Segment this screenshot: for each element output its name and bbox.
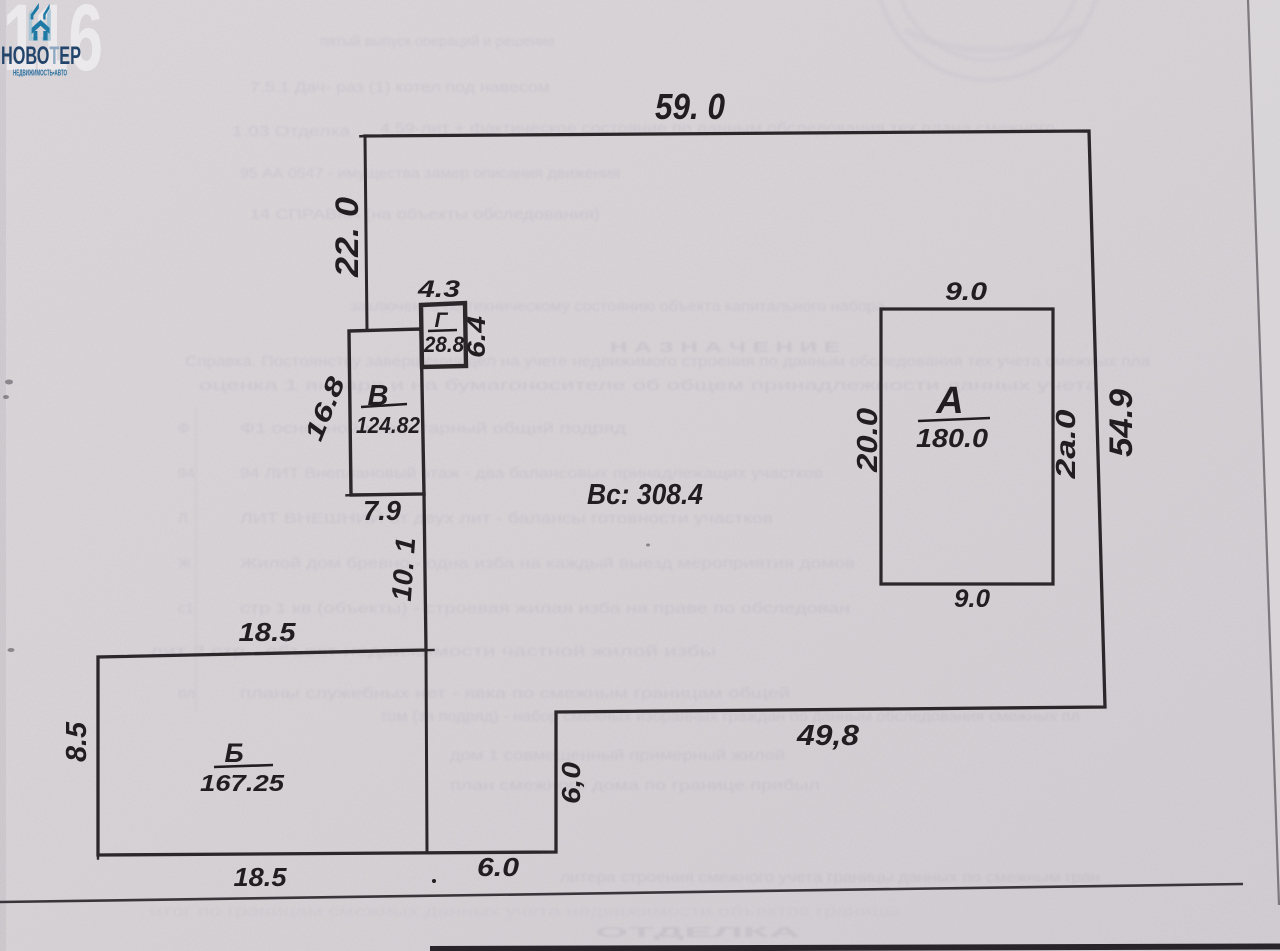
svg-text:6.4: 6.4 [463,316,491,358]
svg-text:НЕДВИЖИМОСТЬ▪АВТО: НЕДВИЖИМОСТЬ▪АВТО [13,69,67,78]
svg-text:7.5.1 Дач- раз (1) котел под н: 7.5.1 Дач- раз (1) котел под навесом [250,79,550,96]
svg-text:дом 1 совмещенный примерный жи: дом 1 совмещенный примерный жилой [450,747,785,764]
svg-text:итог по границам смежных данны: итог по границам смежных данных учета не… [150,903,900,920]
svg-text:план смежного дома по границе: план смежного дома по границе прибыл [450,777,820,794]
svg-text:9.0: 9.0 [954,585,990,613]
svg-text:9.0: 9.0 [945,278,987,306]
svg-text:Вс: 308.4: Вс: 308.4 [587,479,703,511]
svg-text:18.5: 18.5 [234,862,288,892]
svg-text:124.82: 124.82 [356,412,420,438]
svg-text:14 СПРАВКА (на объекты обследо: 14 СПРАВКА (на объекты обследования) [250,206,600,223]
svg-text:Ф: Ф [178,420,189,437]
svg-text:49,8: 49,8 [796,720,860,752]
svg-text:стр 1 кв (объекты) - строевая: стр 1 кв (объекты) - строевая жилая изба… [240,600,850,617]
svg-text:180.0: 180.0 [916,423,989,453]
svg-text:54.9: 54.9 [1103,389,1139,457]
svg-text:6,0: 6,0 [556,761,586,804]
svg-text:28.8: 28.8 [423,332,465,357]
svg-text:95 АА 0547 - имущества замер о: 95 АА 0547 - имущества замер описания дв… [240,165,620,182]
svg-text:Жилой дом бревно - одна изба н: Жилой дом бревно - одна изба на каждый в… [240,555,855,572]
svg-text:ОТДЕЛКА: ОТДЕЛКА [595,924,800,941]
svg-text:А: А [935,380,963,422]
svg-text:94: 94 [178,465,195,482]
svg-text:Г: Г [435,309,449,332]
svg-text:НОВОТЕР: НОВОТЕР [1,42,81,70]
svg-text:пл: пл [178,685,195,702]
svg-text:20.0: 20.0 [852,408,884,473]
svg-text:литера строения смежного учета: литера строения смежного учета границы д… [560,869,1100,886]
svg-text:10. 1: 10. 1 [386,536,421,602]
svg-text:8.5: 8.5 [61,721,93,762]
svg-text:с1: с1 [178,600,194,617]
svg-text:7.9: 7.9 [363,495,401,526]
svg-text:планы служебных нет - явка по: планы служебных нет - явка по смежным гр… [240,685,790,702]
svg-text:1.03 Отделка: 1.03 Отделка [232,123,351,140]
svg-text:Б: Б [224,738,243,768]
svg-text:167.25: 167.25 [200,770,285,796]
svg-text:пятый выпуск операций и решени: пятый выпуск операций и решение [320,33,555,50]
svg-text:59. 0: 59. 0 [655,86,725,127]
svg-text:Ж: Ж [178,555,192,572]
svg-text:Л: Л [178,510,188,527]
svg-text:ЛИТ ВНЕШНИЙ от двух лит - бала: ЛИТ ВНЕШНИЙ от двух лит - балансы готовн… [240,509,773,527]
svg-text:2a.0: 2a.0 [1050,409,1081,480]
svg-text:18.5: 18.5 [239,617,297,647]
svg-text:6.0: 6.0 [477,852,520,882]
svg-text:22. 0: 22. 0 [329,197,365,278]
svg-text:лит 2 стр - объект недвижимост: лит 2 стр - объект недвижимости частной … [150,643,716,660]
svg-text:4.3: 4.3 [417,276,461,303]
svg-text:94 ЛИТ Внеплановый этаж - два: 94 ЛИТ Внеплановый этаж - два балансовых… [240,465,823,482]
svg-text:Справка. Постоянству завершени: Справка. Постоянству завершения дел на у… [185,353,1151,370]
